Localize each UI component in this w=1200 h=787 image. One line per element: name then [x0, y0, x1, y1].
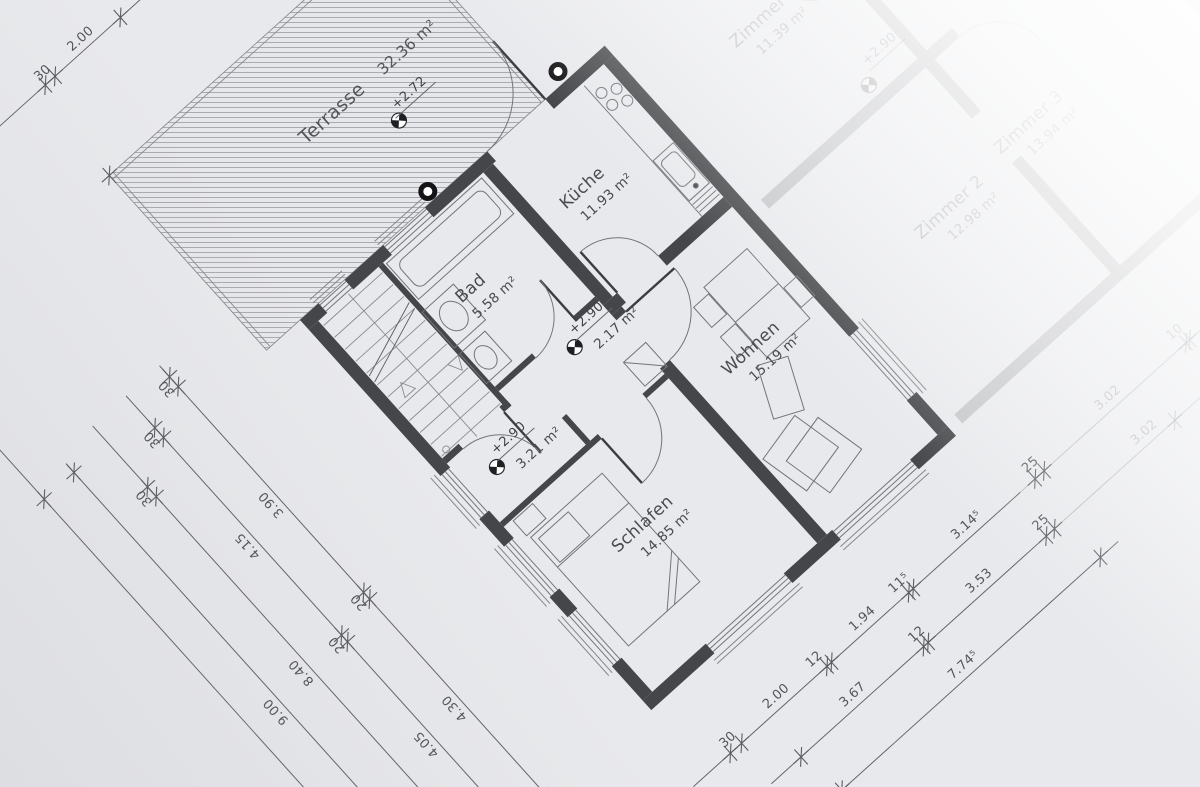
blueprint-photo: +2.72 +2.90 2.17 m² +2.90 3.21 m² Terras…	[0, 0, 1200, 787]
floor-plan-svg: +2.72 +2.90 2.17 m² +2.90 3.21 m² Terras…	[0, 0, 1200, 787]
overexposure-glare	[0, 0, 1200, 787]
